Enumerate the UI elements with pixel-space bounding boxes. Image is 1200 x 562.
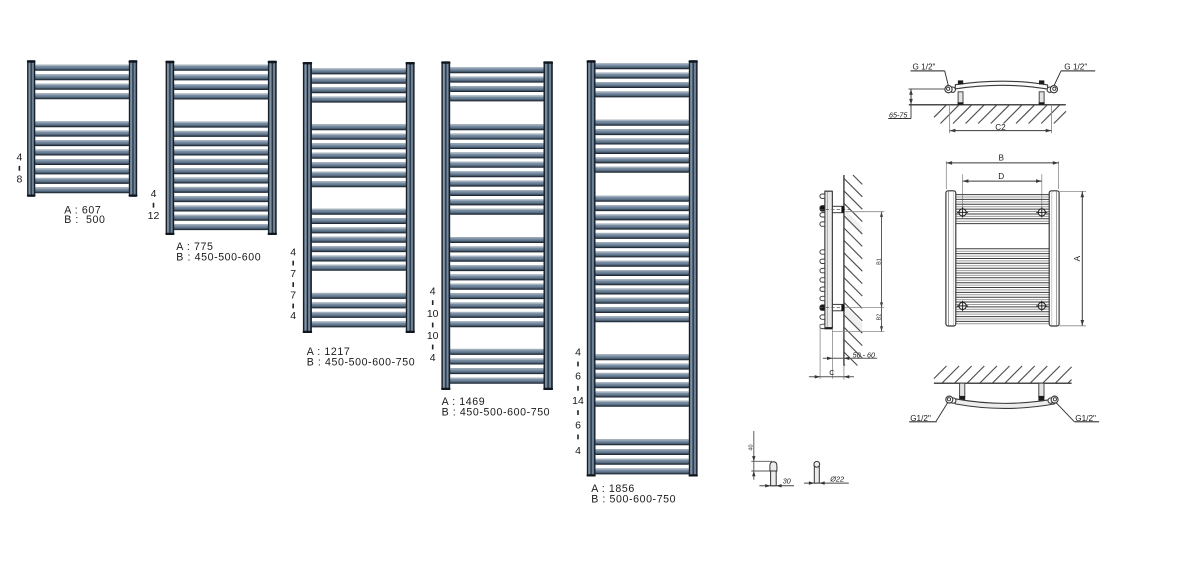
svg-text:12: 12 xyxy=(148,210,160,222)
svg-text:B1: B1 xyxy=(877,258,883,264)
svg-text:D: D xyxy=(998,172,1004,181)
svg-text:4: 4 xyxy=(430,352,436,364)
svg-text:4: 4 xyxy=(575,346,581,358)
svg-text:30: 30 xyxy=(783,477,791,486)
svg-text:14: 14 xyxy=(572,395,584,407)
svg-text:B : 450-500-600: B : 450-500-600 xyxy=(176,251,261,263)
svg-text:G1/2": G1/2" xyxy=(910,414,931,423)
svg-text:40: 40 xyxy=(749,444,755,450)
svg-text:7: 7 xyxy=(290,268,296,280)
svg-text:4: 4 xyxy=(430,286,436,298)
svg-text:50 - 60: 50 - 60 xyxy=(853,350,875,359)
svg-text:7: 7 xyxy=(290,289,296,301)
svg-text:B2: B2 xyxy=(877,314,883,320)
svg-text:B : 500-600-750: B : 500-600-750 xyxy=(591,493,676,505)
svg-text:B : 450-500-600-750: B : 450-500-600-750 xyxy=(442,406,551,418)
svg-text:B : 450-500-600-750: B : 450-500-600-750 xyxy=(307,356,416,368)
svg-text:4: 4 xyxy=(290,246,296,258)
svg-text:8: 8 xyxy=(16,173,22,185)
svg-text:A: A xyxy=(1073,255,1082,261)
svg-text:G 1/2": G 1/2" xyxy=(1064,63,1087,72)
svg-text:10: 10 xyxy=(427,330,439,342)
svg-text:4: 4 xyxy=(16,152,22,164)
svg-text:C2: C2 xyxy=(995,123,1006,132)
svg-text:C: C xyxy=(829,368,835,377)
svg-text:G1/2": G1/2" xyxy=(1075,414,1096,423)
svg-text:4: 4 xyxy=(575,445,581,457)
svg-text:10: 10 xyxy=(427,308,439,320)
svg-text:4: 4 xyxy=(151,188,157,200)
svg-text:B: B xyxy=(998,154,1004,163)
svg-text:B : 500: B : 500 xyxy=(64,214,105,226)
svg-text:6: 6 xyxy=(575,371,581,383)
svg-text:Ø22: Ø22 xyxy=(829,474,844,483)
svg-text:65-75: 65-75 xyxy=(889,110,908,119)
svg-text:G 1/2": G 1/2" xyxy=(913,63,936,72)
svg-text:6: 6 xyxy=(575,419,581,431)
svg-text:4: 4 xyxy=(290,310,296,322)
